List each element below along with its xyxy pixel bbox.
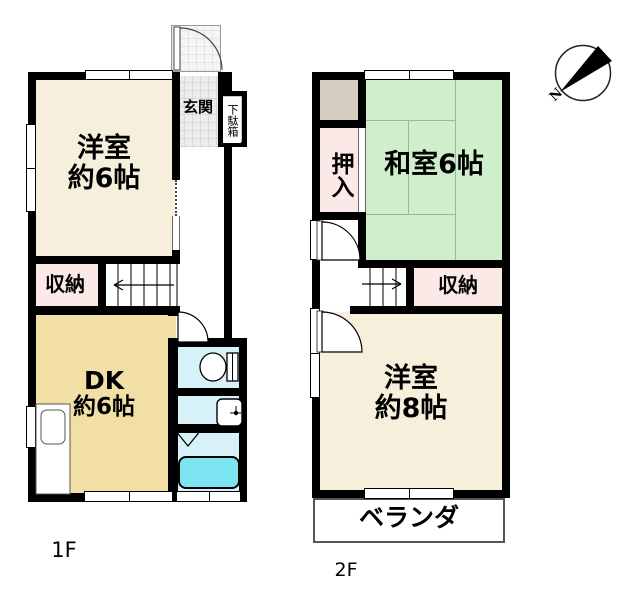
compass-icon: N — [547, 46, 612, 105]
room-label-dk: DK 約6帖 — [46, 367, 162, 421]
window-tick — [409, 488, 410, 499]
room-label-oshiire: 押入 — [322, 136, 358, 214]
room-label-washitsu: 和室6帖 — [366, 150, 502, 180]
wall — [406, 262, 414, 308]
tatami-line — [366, 120, 455, 121]
room-label-line: 約6帖 — [46, 395, 162, 421]
room-label-storage-1f: 収納 — [30, 273, 100, 295]
veranda-label: ベランダ — [313, 504, 505, 532]
room-wood-storage-2f — [318, 78, 362, 124]
stairs-1f — [118, 264, 177, 306]
wall-opening — [172, 216, 180, 250]
wall — [173, 388, 247, 396]
wall — [168, 338, 178, 502]
room-label-shoe-cabinet: 下駄箱 — [223, 97, 241, 143]
window — [26, 406, 36, 448]
sliding-door — [175, 180, 181, 216]
window — [310, 308, 320, 398]
wall — [502, 72, 510, 498]
room-toilet — [176, 345, 240, 390]
wall — [350, 306, 510, 314]
stairs-1f-arrow — [114, 280, 174, 290]
sliding-door — [358, 128, 366, 212]
stairs-2f-arrow — [362, 279, 401, 289]
wall — [358, 260, 510, 268]
wall — [239, 338, 247, 502]
window — [364, 70, 454, 80]
room-washbasin — [176, 394, 240, 426]
room-label-line: 洋室 — [330, 364, 492, 394]
window-tick — [129, 70, 130, 80]
compass-north-label: N — [547, 86, 566, 105]
room-label-storage-2f: 収納 — [414, 274, 502, 296]
room-label-western6: 洋室 約6帖 — [34, 134, 174, 194]
window-tick — [209, 491, 210, 502]
entrance-porch — [171, 25, 221, 72]
wall — [358, 72, 366, 128]
room-label-line: DK — [46, 367, 162, 395]
room-bath — [176, 431, 240, 495]
window — [85, 70, 173, 80]
window-tick — [409, 70, 410, 80]
room-label-western8: 洋室 約8帖 — [330, 364, 492, 424]
wall — [168, 338, 247, 347]
room-label-line: 洋室 — [34, 134, 174, 164]
tatami-line — [366, 214, 455, 215]
floorplan-canvas: 洋室 約6帖 玄関 下駄箱 収納 DK 約6帖 1F — [0, 0, 640, 611]
wall — [173, 424, 247, 433]
window-tick — [310, 353, 320, 354]
landing-door-arc — [317, 221, 360, 260]
window-tick — [129, 491, 130, 502]
room-label-line: 約8帖 — [330, 394, 492, 424]
room-label-line: 約6帖 — [34, 164, 174, 194]
stairs-2f — [370, 262, 396, 306]
window — [84, 491, 173, 502]
room-label-entrance: 玄関 — [176, 99, 220, 116]
window — [310, 220, 320, 260]
wall — [28, 306, 180, 315]
floor-label-2f: 2F — [326, 560, 366, 581]
wall — [312, 72, 320, 498]
window — [176, 491, 241, 502]
floor-label-1f: 1F — [44, 539, 84, 563]
wall — [168, 306, 178, 316]
window — [364, 488, 454, 499]
